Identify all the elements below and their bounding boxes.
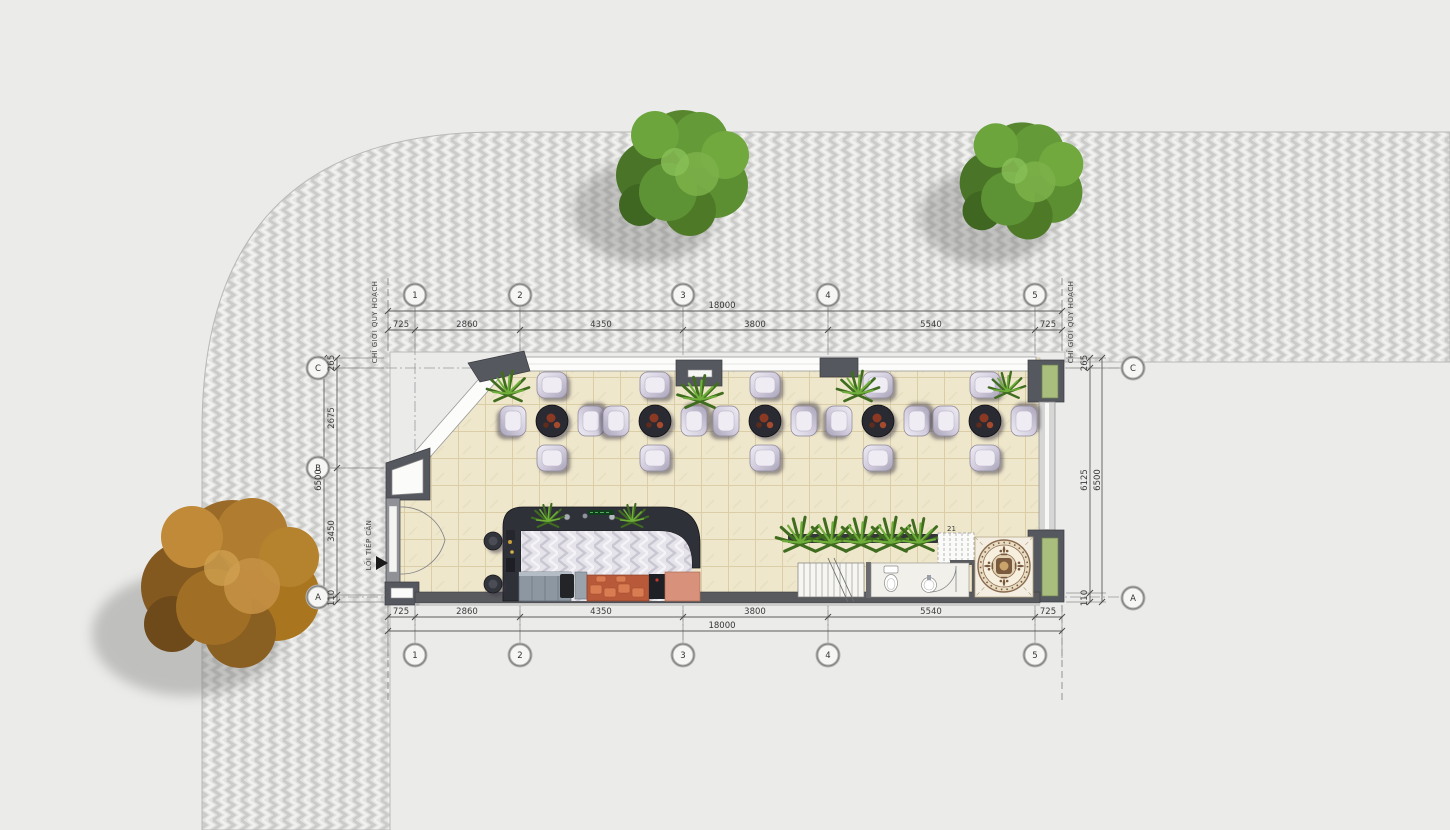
planning-boundary-label-right: CHỈ GIỚI QUY HOẠCH bbox=[1066, 281, 1075, 364]
dim-top-overall: 18000 bbox=[708, 301, 735, 311]
pier-window-slot bbox=[688, 370, 712, 377]
side-glazing-highlight bbox=[1045, 403, 1049, 529]
dim-bottom-5540: 5540 bbox=[920, 607, 942, 617]
bottom-left-window bbox=[391, 588, 413, 598]
bar-stool-seat bbox=[489, 537, 498, 546]
toilet-tank bbox=[884, 566, 898, 573]
site-plan-canvas: 1 2 3 4 5 1 2 3 4 5 C B A C A 725 2860 4… bbox=[0, 0, 1450, 830]
salmon-counter-end bbox=[665, 572, 700, 601]
grid-bubble-5-bottom: 5 bbox=[1032, 651, 1037, 661]
bar-sink bbox=[575, 572, 587, 599]
compass-mosaic-room bbox=[975, 537, 1033, 597]
wc-partition-wall bbox=[866, 562, 871, 598]
compass-mosaic bbox=[978, 540, 1030, 592]
dim-left-3450: 3450 bbox=[327, 520, 337, 542]
green-panel-bottom-right bbox=[1042, 538, 1058, 596]
entrance-door-glazing bbox=[389, 506, 397, 572]
grid-bubble-1-top: 1 bbox=[412, 291, 417, 301]
grid-bubble-3-top: 3 bbox=[680, 291, 685, 301]
dim-top-2860: 2860 bbox=[456, 320, 478, 330]
counter-jar bbox=[583, 514, 588, 519]
bar-stool-seat bbox=[489, 580, 498, 589]
dim-bottom-3800: 3800 bbox=[744, 607, 766, 617]
bar-equipment bbox=[506, 558, 515, 572]
bottom-wall-shadow bbox=[415, 603, 1040, 606]
floor-plan-scene: 1 2 3 4 5 1 2 3 4 5 C B A C A 725 2860 4… bbox=[0, 0, 1450, 830]
planning-boundary-label-left: CHỈ GIỚI QUY HOẠCH bbox=[370, 281, 379, 364]
dim-right-265: 265 bbox=[1080, 355, 1090, 371]
access-path-label: LỐI TIẾP CẬN bbox=[363, 520, 373, 571]
bottle bbox=[508, 540, 512, 544]
green-panel-top-right bbox=[1042, 365, 1058, 398]
dim-right-overall: 6500 bbox=[1093, 469, 1103, 491]
dim-bottom-4350: 4350 bbox=[590, 607, 612, 617]
grid-bubble-4-bottom: 4 bbox=[825, 651, 830, 661]
dim-top-725b: 725 bbox=[1040, 320, 1056, 330]
dim-right-6125: 6125 bbox=[1080, 469, 1090, 491]
dim-top-4350: 4350 bbox=[590, 320, 612, 330]
coffee-roaster bbox=[649, 574, 665, 599]
grid-bubble-C-right: C bbox=[1130, 364, 1136, 374]
sink-tap bbox=[927, 575, 931, 580]
bottle bbox=[510, 550, 514, 554]
stair-count-label: 21 bbox=[947, 525, 956, 533]
dim-bottom-725a: 725 bbox=[393, 607, 409, 617]
dim-bottom-overall: 18000 bbox=[708, 621, 735, 631]
dim-left-overall: 6500 bbox=[314, 469, 324, 491]
dim-right-110: 110 bbox=[1080, 590, 1090, 606]
dim-bottom-725b: 725 bbox=[1040, 607, 1056, 617]
grid-bubble-A-left: A bbox=[315, 593, 321, 603]
grid-bubble-2-top: 2 bbox=[517, 291, 522, 301]
dim-top-725a: 725 bbox=[393, 320, 409, 330]
toilet-bowl bbox=[885, 575, 898, 592]
grid-bubble-1-bottom: 1 bbox=[412, 651, 417, 661]
dim-left-110: 110 bbox=[327, 590, 337, 606]
dim-top-3800: 3800 bbox=[744, 320, 766, 330]
wc bbox=[871, 563, 969, 597]
grid-bubble-4-top: 4 bbox=[825, 291, 830, 301]
grid-bubble-3-bottom: 3 bbox=[680, 651, 685, 661]
roaster-light bbox=[655, 578, 658, 581]
espresso-machine bbox=[560, 574, 574, 598]
dim-left-265: 265 bbox=[327, 355, 337, 371]
stair-upper-flight-dashed bbox=[938, 533, 974, 563]
grid-bubble-2-bottom: 2 bbox=[517, 651, 522, 661]
grid-bubble-C-left: C bbox=[315, 364, 321, 374]
dim-left-2675: 2675 bbox=[327, 407, 337, 429]
dim-bottom-2860: 2860 bbox=[456, 607, 478, 617]
bar-equipment bbox=[506, 530, 515, 540]
dim-top-5540: 5540 bbox=[920, 320, 942, 330]
grid-bubble-A-right: A bbox=[1130, 594, 1136, 604]
bar-counter bbox=[484, 504, 700, 601]
grid-bubble-5-top: 5 bbox=[1032, 291, 1037, 301]
staircase bbox=[798, 558, 864, 602]
